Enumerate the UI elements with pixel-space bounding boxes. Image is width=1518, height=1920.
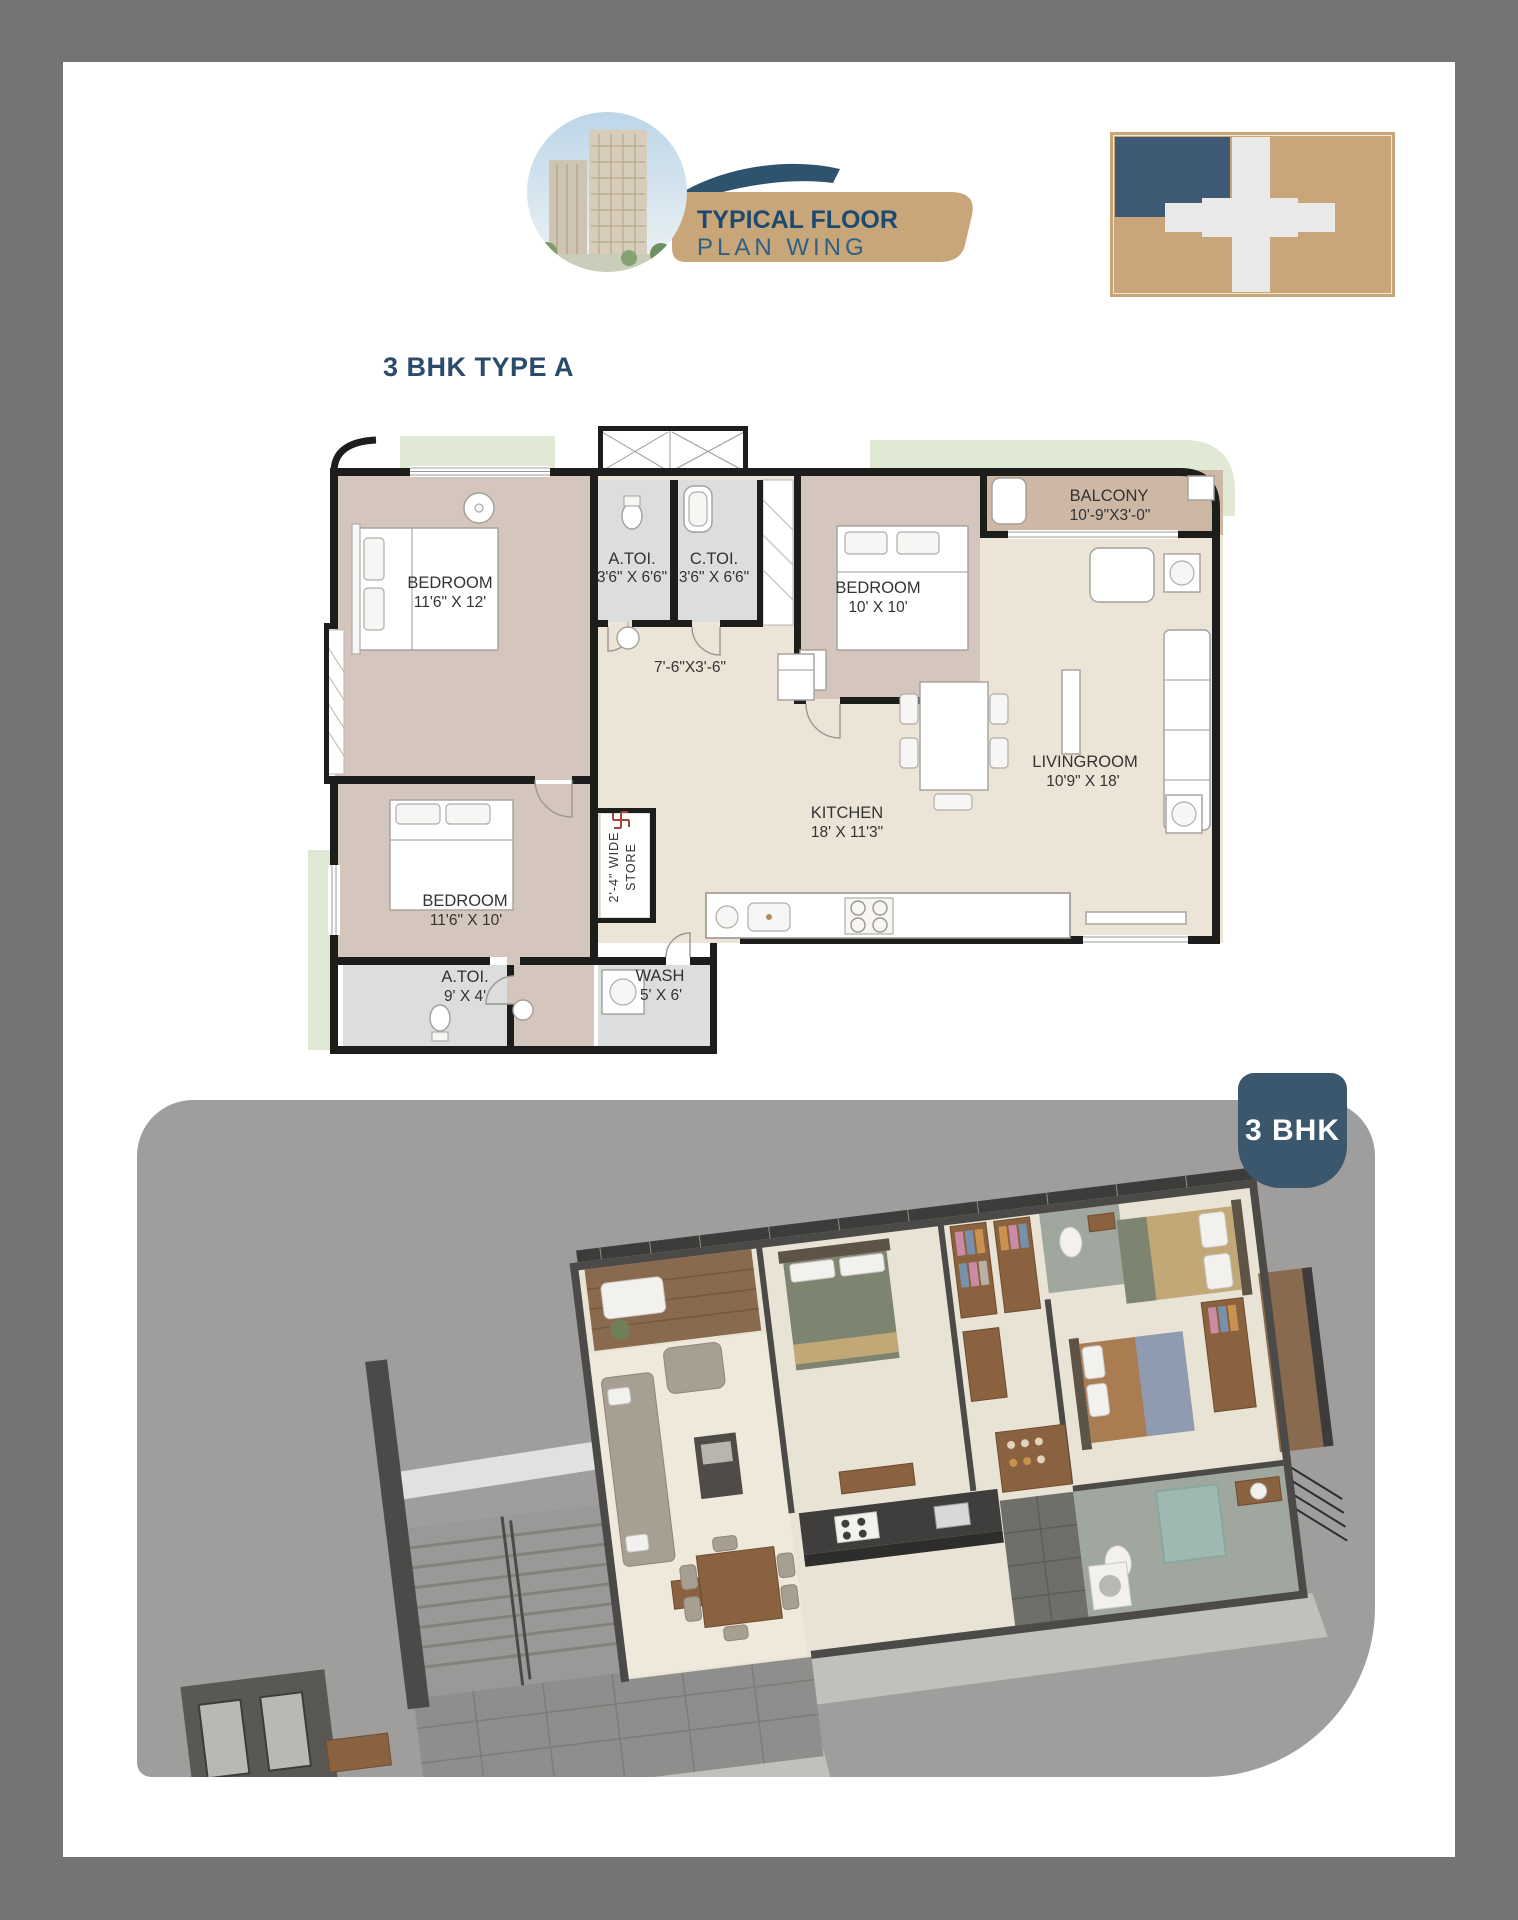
- room-label-atoi1: A.TOI.: [608, 550, 655, 568]
- header-subtitle: PLAN WING: [697, 234, 868, 261]
- room-label-kitchen: KITCHEN: [811, 804, 883, 822]
- passage-dims: 7'-6"X3'-6": [654, 659, 726, 676]
- header-title: TYPICAL FLOOR: [697, 206, 898, 234]
- room-label-living: LIVINGROOM: [1032, 753, 1137, 771]
- elevator-block: [180, 1669, 337, 1777]
- header-banner: TYPICAL FLOOR PLAN WING: [660, 150, 1000, 270]
- room-dims-bedroom-tr: 10' X 10': [848, 599, 907, 616]
- floor-plan-2d: BEDROOM 11'6" X 12' A.TOI. 3'6" X 6'6" C…: [280, 420, 1240, 1070]
- brand-logo: [1110, 132, 1395, 297]
- room-label-ctoi: C.TOI.: [690, 550, 738, 568]
- planter-top-left: [400, 436, 555, 468]
- stairwell-floor: [408, 1504, 627, 1697]
- room-label-bedroom-tl: BEDROOM: [407, 574, 492, 592]
- room-dims-ctoi: 3'6" X 6'6": [679, 569, 749, 586]
- brochure-page: TYPICAL FLOOR PLAN WING: [0, 0, 1518, 1920]
- building-photo: [527, 112, 687, 272]
- room-dims-bedroom-bl: 11'6" X 10': [430, 912, 502, 929]
- corner-wall-arc: [334, 440, 376, 472]
- room-dims-atoi2: 9' X 4': [444, 988, 486, 1005]
- room-label-atoi2: A.TOI.: [441, 968, 488, 986]
- room-dims-living: 10'9" X 18': [1046, 773, 1120, 790]
- room-dims-atoi1: 3'6" X 6'6": [597, 569, 667, 586]
- bhk-badge-label: 3 BHK: [1245, 1114, 1340, 1148]
- room-label-bedroom-tr: BEDROOM: [835, 579, 920, 597]
- room-label-bedroom-bl: BEDROOM: [422, 892, 507, 910]
- room-label-balcony: BALCONY: [1070, 487, 1149, 505]
- duct-shaft: [600, 430, 746, 473]
- room-dims-bedroom-tl: 11'6" X 12': [414, 594, 486, 611]
- render-panel: [137, 1100, 1375, 1777]
- logo-cross-horizontal: [1165, 203, 1335, 232]
- store-label-line1: 2'-4" WIDE: [607, 832, 621, 903]
- photo-tower-back: [549, 160, 587, 260]
- room-dims-kitchen: 18' X 11'3": [811, 824, 883, 841]
- room-label-wash: WASH: [636, 967, 685, 985]
- room-dims-balcony: 10'-9"X3'-0": [1070, 507, 1151, 524]
- bathroom-3d: [1072, 1460, 1299, 1617]
- coffee-table-3d: [694, 1432, 743, 1499]
- wardrobe-hatch-bedroom-tr: [763, 480, 793, 625]
- store-label-line2: STORE: [624, 843, 638, 891]
- room-dims-wash: 5' X 6': [640, 987, 682, 1004]
- bhk-badge: 3 BHK: [1238, 1073, 1347, 1188]
- photo-tree-3: [621, 250, 637, 266]
- plan-heading: 3 BHK TYPE A: [383, 352, 574, 383]
- toilet-small-3d: [1039, 1204, 1128, 1293]
- render-3d: [137, 1100, 1375, 1777]
- entry-door-3d: [326, 1733, 391, 1772]
- armchair-3d: [663, 1342, 726, 1395]
